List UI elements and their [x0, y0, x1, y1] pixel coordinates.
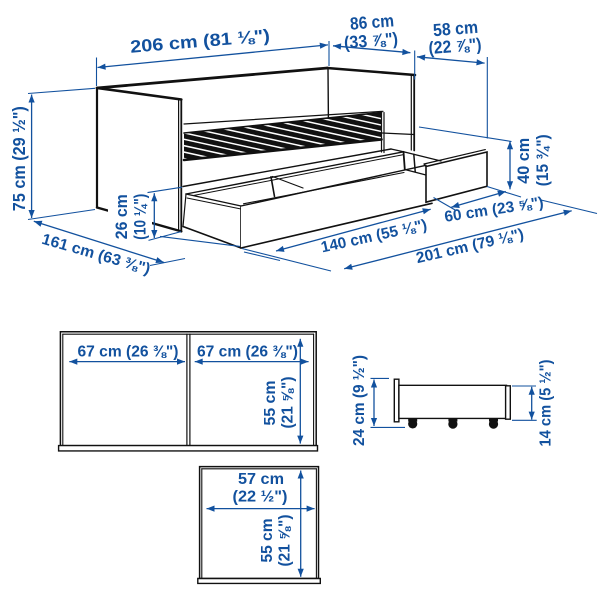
svg-text:(10 ¼"): (10 ¼"): [131, 194, 149, 240]
svg-text:26 cm: 26 cm: [113, 194, 131, 239]
svg-text:57 cm: 57 cm: [238, 471, 284, 488]
svg-text:(21 ⅝"): (21 ⅝"): [280, 377, 297, 429]
svg-text:(33 ⅞"): (33 ⅞"): [343, 28, 398, 52]
svg-text:(22 ½"): (22 ½"): [233, 488, 288, 505]
svg-text:14 cm (5 ½"): 14 cm (5 ½"): [538, 360, 555, 447]
svg-text:24 cm (9 ½"): 24 cm (9 ½"): [351, 355, 368, 446]
svg-text:40 cm: 40 cm: [515, 138, 533, 184]
svg-text:75 cm (29 ½"): 75 cm (29 ½"): [9, 106, 29, 211]
svg-text:55 cm: 55 cm: [262, 381, 279, 426]
svg-text:67 cm (26 ⅜"): 67 cm (26 ⅜"): [78, 344, 179, 361]
svg-text:(15 ¾"): (15 ¾"): [534, 134, 552, 186]
svg-text:67 cm (26 ⅜"): 67 cm (26 ⅜"): [197, 344, 298, 361]
svg-text:(21 ⅝"): (21 ⅝"): [277, 515, 294, 567]
svg-text:55 cm: 55 cm: [259, 519, 276, 563]
svg-text:(22 ⅞"): (22 ⅞"): [428, 34, 482, 58]
